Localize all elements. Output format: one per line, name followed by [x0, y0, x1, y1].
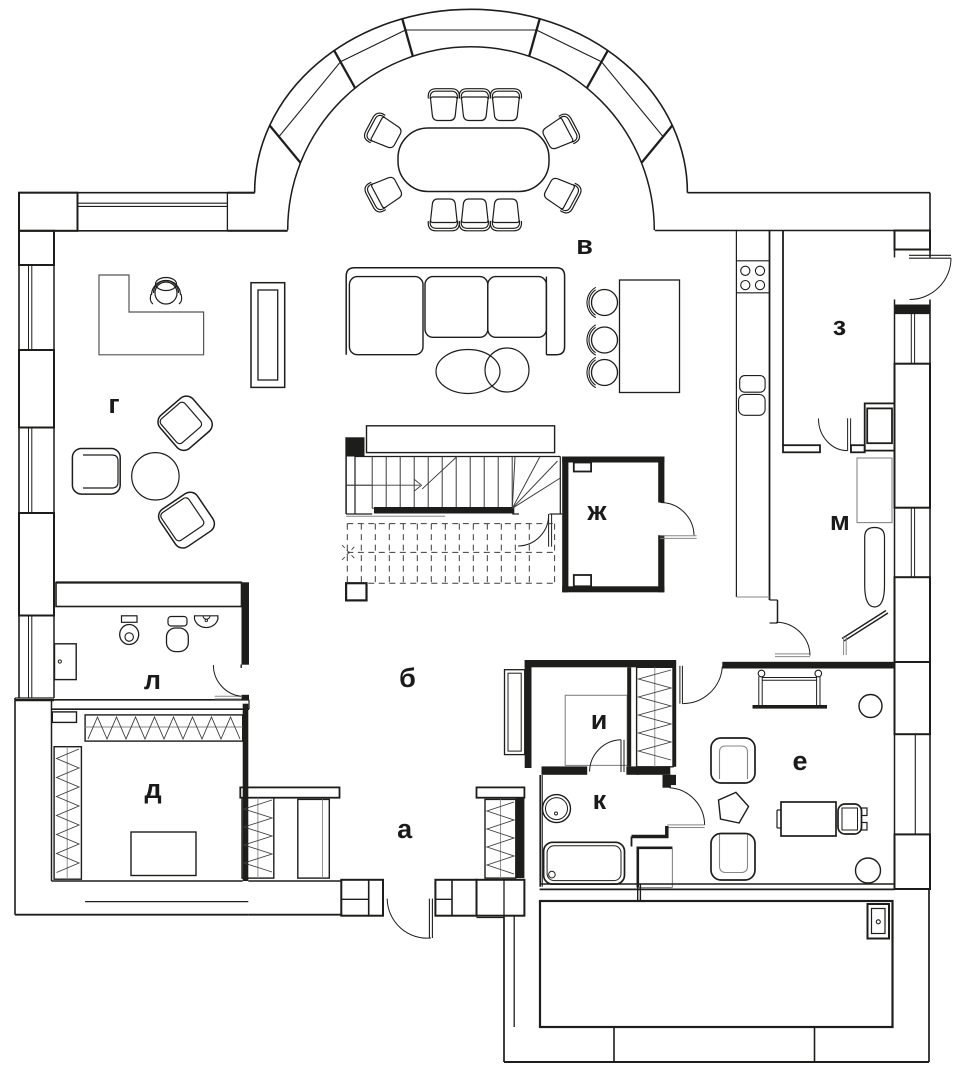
- svg-text:в: в: [576, 230, 593, 260]
- svg-text:е: е: [792, 746, 807, 776]
- svg-text:а: а: [397, 814, 413, 844]
- svg-text:к: к: [593, 785, 607, 815]
- svg-text:и: и: [591, 705, 608, 735]
- svg-text:б: б: [399, 663, 416, 693]
- svg-text:м: м: [830, 506, 850, 536]
- svg-text:д: д: [145, 774, 162, 804]
- svg-text:з: з: [833, 311, 846, 341]
- svg-text:л: л: [144, 665, 161, 695]
- svg-text:г: г: [108, 389, 119, 419]
- svg-text:ж: ж: [586, 496, 607, 526]
